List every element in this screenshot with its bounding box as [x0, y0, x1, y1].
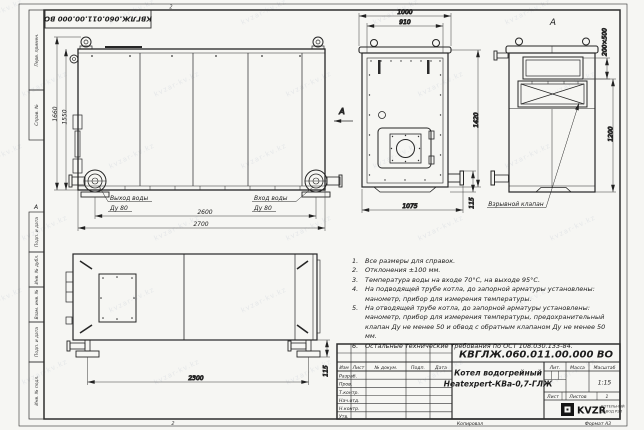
dim-1075: 1075 [402, 203, 417, 210]
rear-window [523, 57, 583, 79]
explosion-valve-panel [518, 81, 587, 107]
col-list: Лист [352, 365, 365, 371]
dim-2700: 2700 [193, 221, 208, 228]
lifting-lug-icon [312, 37, 324, 49]
col-izm: Изм [339, 365, 349, 371]
note-text: Температура воды на входе 70°С, на выход… [365, 276, 608, 285]
note-number: 5. [352, 304, 365, 342]
margin-label: Подп. и дата [34, 327, 40, 357]
lifting-lug-icon [80, 37, 92, 49]
water-inlet-flange [302, 170, 342, 197]
mass-label: Масса [570, 365, 585, 371]
outlet-dn-label: Ду 80 [109, 205, 128, 212]
panel-bolts [91, 55, 301, 57]
note-item: 1. Все размеры для справок. [352, 257, 608, 266]
note-text: Остальные технические требования по ОСТ … [365, 342, 608, 351]
product-title-line1: Котел водогрейный [454, 369, 543, 378]
col-doc: № докум. [374, 365, 398, 371]
front-view: 1660 1550 2600 2700 Выход воды Ду 80 Вхо… [52, 37, 342, 231]
dim-1660: 1660 [52, 106, 59, 121]
note-item: 4. На подводящей трубе котла, до запорно… [352, 285, 608, 304]
copy-label: Копировал [457, 421, 483, 427]
sight-hole [379, 112, 386, 119]
dim-2300: 2300 [188, 375, 203, 382]
note-number: 6. [352, 342, 365, 351]
dim-115-plan: 115 [323, 365, 330, 377]
format-label: Формат А3 [585, 421, 611, 427]
view-a-letter: А [338, 107, 344, 116]
burner-plate [378, 128, 434, 168]
note-number: 3. [352, 276, 365, 285]
row-prov: Пров. [339, 382, 352, 388]
margin-label: Инв. № подл. [34, 375, 40, 405]
lifting-lug-icon [516, 38, 523, 45]
lifting-lug-icon [583, 38, 590, 45]
sheets-value: 1 [606, 394, 609, 400]
margin-label: Подп. и дата [34, 217, 40, 247]
doc-number: КВГЛЖ.060.011.00.000 ВО [459, 350, 614, 361]
note-item: 5. На отводящей трубе котла, до запорной… [352, 304, 608, 342]
col-date: Дата [434, 365, 447, 371]
kvzr-logo-icon [561, 403, 574, 416]
note-number: 4. [352, 285, 365, 304]
dim-1550: 1550 [62, 109, 69, 124]
row-nachotd: Нач.отд. [339, 398, 360, 404]
side-view: 1000 910 1420 115 1075 А [334, 9, 481, 213]
lifting-lug-icon [433, 40, 440, 47]
technical-notes: 1. Все размеры для справок. 2. Отклонени… [352, 257, 608, 351]
note-text: Все размеры для справок. [365, 257, 608, 266]
margin-label: Справ. № [34, 104, 40, 126]
dim-2600: 2600 [197, 209, 212, 216]
logo-subtitle-line2: ЗАВОД РЭП [601, 410, 623, 414]
dim-1200: 1200 [608, 126, 615, 141]
dim-910: 910 [399, 19, 411, 26]
back-view: А [487, 18, 616, 208]
note-number: 1. [352, 257, 365, 266]
plan-support-right [288, 340, 320, 357]
scale-value: 1:15 [598, 380, 612, 387]
row-tkontr: Т.контр. [339, 390, 359, 396]
fold-mark-bottom: 2 [171, 421, 174, 427]
margin-label: Взам. инв. № [34, 289, 40, 319]
inlet-label: Вход воды [254, 195, 288, 202]
product-title-line2: Heatexpert-КВа-0,7-ГЛЖ [444, 380, 553, 389]
lifting-lug-icon [371, 40, 378, 47]
inlet-dn-label: Ду 80 [253, 205, 272, 212]
explosion-valve-label: Взрывной клапан [488, 201, 544, 208]
note-number: 2. [352, 266, 365, 275]
note-item: 2. Отклонения ±100 мм. [352, 266, 608, 275]
margin-label: Перв. примен. [34, 34, 40, 67]
dim-115: 115 [469, 197, 476, 209]
sheet-label: Лист [546, 394, 559, 400]
col-sign: Подп. [411, 365, 425, 371]
note-item: 6. Остальные технические требования по О… [352, 342, 608, 351]
lit-label: Лит. [549, 365, 561, 371]
note-item: 3. Температура воды на входе 70°С, на вы… [352, 276, 608, 285]
view-a-title: А [549, 18, 556, 28]
view-a-marker: А [334, 107, 353, 121]
dim-200x500: 200×500 [602, 28, 609, 56]
logo-subtitle-line1: КОТЕЛЬНЫЙ [601, 404, 625, 409]
rear-bottom-flange [491, 171, 509, 185]
dim-1420: 1420 [473, 112, 480, 127]
top-hatch [99, 274, 136, 322]
note-text: Отклонения ±100 мм. [365, 266, 608, 275]
row-utv: Утв. [339, 414, 349, 420]
rotated-doc-number-stamp: КВГЛЖ.060.011.00.000 ВО [44, 15, 152, 23]
row-razrab: Разраб. [339, 374, 357, 380]
plan-dimensions [88, 340, 331, 385]
zone-letter: А [33, 204, 38, 211]
note-text: На подводящей трубе котла, до запорной а… [365, 285, 608, 304]
scale-label: Масштаб [594, 365, 616, 371]
plan-view: 2300 115 [66, 254, 330, 385]
outlet-label: Выход воды [110, 195, 148, 202]
back-dimensions [583, 58, 616, 192]
sheets-label: Листов [568, 394, 586, 400]
plan-side-bracket [66, 272, 73, 324]
sheet-border [19, 4, 627, 426]
sheet-margin-labels: Перв. примен. Справ. № Подп. и дата Инв.… [33, 5, 175, 427]
fold-mark-top: 2 [169, 5, 172, 11]
side-lug-icon [70, 55, 78, 63]
plan-support-left [67, 340, 99, 357]
side-flange [448, 171, 464, 185]
drawing-sheet: kvzar-kv.kzkvzar-kv.kzkvzar-kv.kzkvzar-k… [0, 0, 644, 430]
title-block-text: КВГЛЖ.060.011.00.000 ВО Изм Лист № докум… [339, 350, 625, 428]
dim-1000: 1000 [397, 9, 412, 16]
row-nkontr: Н.контр. [339, 406, 360, 412]
note-text: На отводящей трубе котла, до запорной ар… [365, 304, 608, 342]
margin-label: Инв. № дубл. [34, 254, 40, 284]
drawing-canvas: Перв. примен. Справ. № Подп. и дата Инв.… [0, 0, 644, 430]
